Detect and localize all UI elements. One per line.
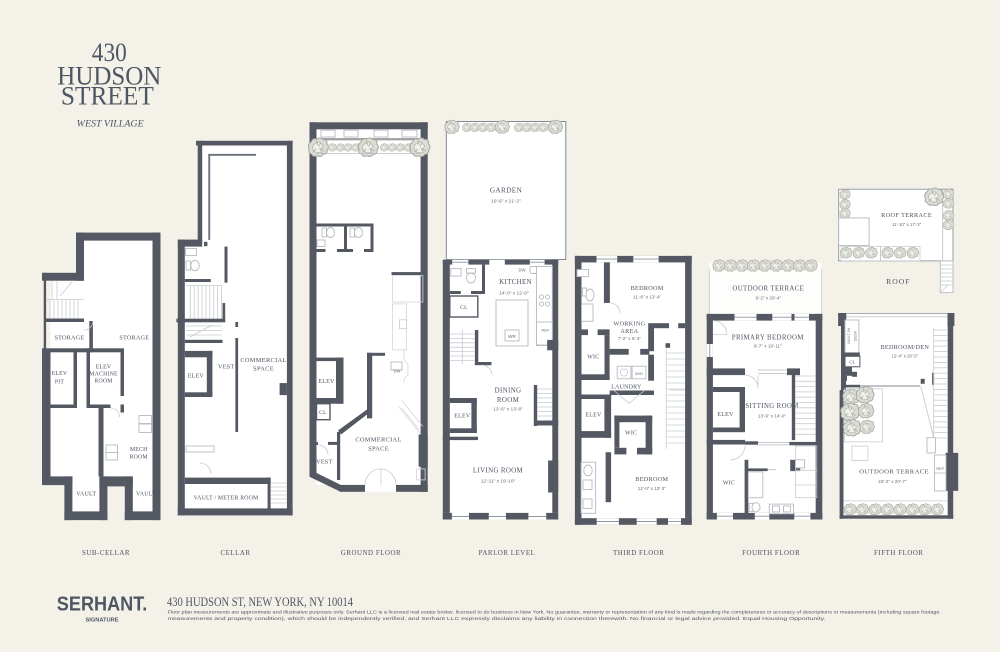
svg-text:ELEV: ELEV <box>52 371 68 377</box>
svg-text:OUTDOOR TERRACE: OUTDOOR TERRACE <box>732 285 804 292</box>
svg-text:MECH: MECH <box>130 447 148 453</box>
svg-text:PIT: PIT <box>55 380 65 386</box>
svg-text:OUTDOOR TERRACE: OUTDOOR TERRACE <box>859 469 929 476</box>
svg-text:14′-0″ x 12′-0″: 14′-0″ x 12′-0″ <box>499 290 529 296</box>
svg-text:FOURTH FLOOR: FOURTH FLOOR <box>742 550 800 557</box>
svg-text:KITCHEN: KITCHEN <box>499 278 532 286</box>
svg-text:ELEV: ELEV <box>96 365 112 371</box>
svg-text:BEDROOM/DEN: BEDROOM/DEN <box>880 344 929 351</box>
svg-text:LAUNDRY: LAUNDRY <box>611 384 642 390</box>
svg-text:GROUND FLOOR: GROUND FLOOR <box>341 550 401 557</box>
svg-text:THIRD FLOOR: THIRD FLOOR <box>613 550 664 557</box>
svg-text:ELEV: ELEV <box>318 379 335 385</box>
svg-text:VAULT / METER ROOM: VAULT / METER ROOM <box>194 495 259 501</box>
svg-text:ROOM: ROOM <box>497 396 520 404</box>
svg-text:12′-4″ x 20′-5″: 12′-4″ x 20′-5″ <box>891 354 918 359</box>
svg-text:13′-9″ x 14′-0″: 13′-9″ x 14′-0″ <box>758 413 787 418</box>
svg-text:WIC: WIC <box>625 431 637 437</box>
svg-text:LIVING ROOM: LIVING ROOM <box>473 467 524 475</box>
svg-text:STORAGE: STORAGE <box>54 334 84 341</box>
svg-text:PRIMARY BEDROOM: PRIMARY BEDROOM <box>732 335 804 342</box>
svg-text:ELEV: ELEV <box>717 412 734 418</box>
svg-text:MACHINE: MACHINE <box>89 372 118 378</box>
svg-text:AREA: AREA <box>620 328 638 335</box>
svg-text:SPACE: SPACE <box>253 366 274 373</box>
svg-text:9′-2″ x 20′-4″: 9′-2″ x 20′-4″ <box>755 295 781 300</box>
svg-text:13′-6″ x 13′-8″: 13′-6″ x 13′-8″ <box>493 407 523 413</box>
svg-text:PARLOR LEVEL: PARLOR LEVEL <box>479 550 536 557</box>
svg-text:WR: WR <box>508 334 516 339</box>
svg-text:CL: CL <box>460 305 468 311</box>
svg-text:CL: CL <box>319 410 327 416</box>
svg-text:ROOF: ROOF <box>886 277 910 286</box>
svg-text:12′-0″ x 13′-3″: 12′-0″ x 13′-3″ <box>638 486 667 491</box>
svg-text:REF: REF <box>542 328 551 333</box>
svg-text:VEST: VEST <box>218 364 234 371</box>
svg-text:ROOF TERRACE: ROOF TERRACE <box>881 212 932 219</box>
svg-text:WIC: WIC <box>587 354 599 360</box>
svg-text:ELEV: ELEV <box>585 413 602 419</box>
svg-text:23′-2″ x 20′-7″: 23′-2″ x 20′-7″ <box>878 479 907 484</box>
svg-text:SIGNATURE: SIGNATURE <box>86 618 119 624</box>
svg-text:BEDROOM: BEDROOM <box>635 476 668 483</box>
svg-text:COMMERCIAL: COMMERCIAL <box>355 437 401 444</box>
svg-text:STORAGE: STORAGE <box>119 334 149 341</box>
svg-text:COMMERCIAL: COMMERCIAL <box>240 357 286 364</box>
svg-text:W/D: W/D <box>635 371 643 376</box>
svg-text:BEDROOM: BEDROOM <box>631 285 664 292</box>
svg-text:FIFTH FLOOR: FIFTH FLOOR <box>874 550 924 557</box>
svg-text:CELLAR: CELLAR <box>220 550 250 557</box>
svg-text:430 HUDSON ST, NEW YORK, NY 10: 430 HUDSON ST, NEW YORK, NY 10014 <box>167 594 353 609</box>
svg-text:DW: DW <box>519 268 526 273</box>
svg-text:11′-10″ x 17′-3″: 11′-10″ x 17′-3″ <box>892 222 922 227</box>
svg-text:SPACE: SPACE <box>368 445 389 452</box>
svg-text:WIC: WIC <box>723 481 735 487</box>
svg-text:19′-6″ x 21′-2″: 19′-6″ x 21′-2″ <box>491 199 521 205</box>
svg-text:WEST VILLAGE: WEST VILLAGE <box>77 120 144 130</box>
svg-text:STREET: STREET <box>61 82 154 111</box>
svg-text:Floor plan measurements are ap: Floor plan measurements are approximate … <box>168 610 941 615</box>
svg-text:ELEV: ELEV <box>454 414 471 420</box>
svg-text:VAULT: VAULT <box>76 491 96 497</box>
svg-text:VAULT: VAULT <box>136 491 156 497</box>
svg-text:VEST: VEST <box>316 459 332 466</box>
svg-text:GARDEN: GARDEN <box>490 187 523 195</box>
svg-text:ELEV: ELEV <box>188 374 205 380</box>
svg-text:CL: CL <box>849 359 855 364</box>
svg-text:ROOM: ROOM <box>130 455 148 461</box>
svg-text:REF: REF <box>936 466 944 471</box>
svg-text:SERHANT.: SERHANT. <box>57 593 148 616</box>
svg-text:measurements and property cond: measurements and property condition), wh… <box>168 616 826 621</box>
svg-text:DW: DW <box>394 369 401 374</box>
svg-text:7′-2″ x 6′-3″: 7′-2″ x 6′-3″ <box>618 336 641 341</box>
svg-text:BUILT-IN: BUILT-IN <box>846 328 851 344</box>
svg-text:DINING: DINING <box>495 387 522 395</box>
svg-text:WORKING: WORKING <box>613 321 645 328</box>
svg-text:9′-7″ x 19′-11″: 9′-7″ x 19′-11″ <box>754 344 782 349</box>
svg-text:SITTING ROOM: SITTING ROOM <box>745 403 798 410</box>
svg-text:ROOM: ROOM <box>94 379 112 385</box>
svg-text:DESK: DESK <box>853 330 858 341</box>
svg-text:12′-11″ x 19′-10″: 12′-11″ x 19′-10″ <box>481 479 516 485</box>
svg-text:SUB-CELLAR: SUB-CELLAR <box>82 550 130 557</box>
svg-text:11′-6″ x 13′-4″: 11′-6″ x 13′-4″ <box>633 295 661 300</box>
